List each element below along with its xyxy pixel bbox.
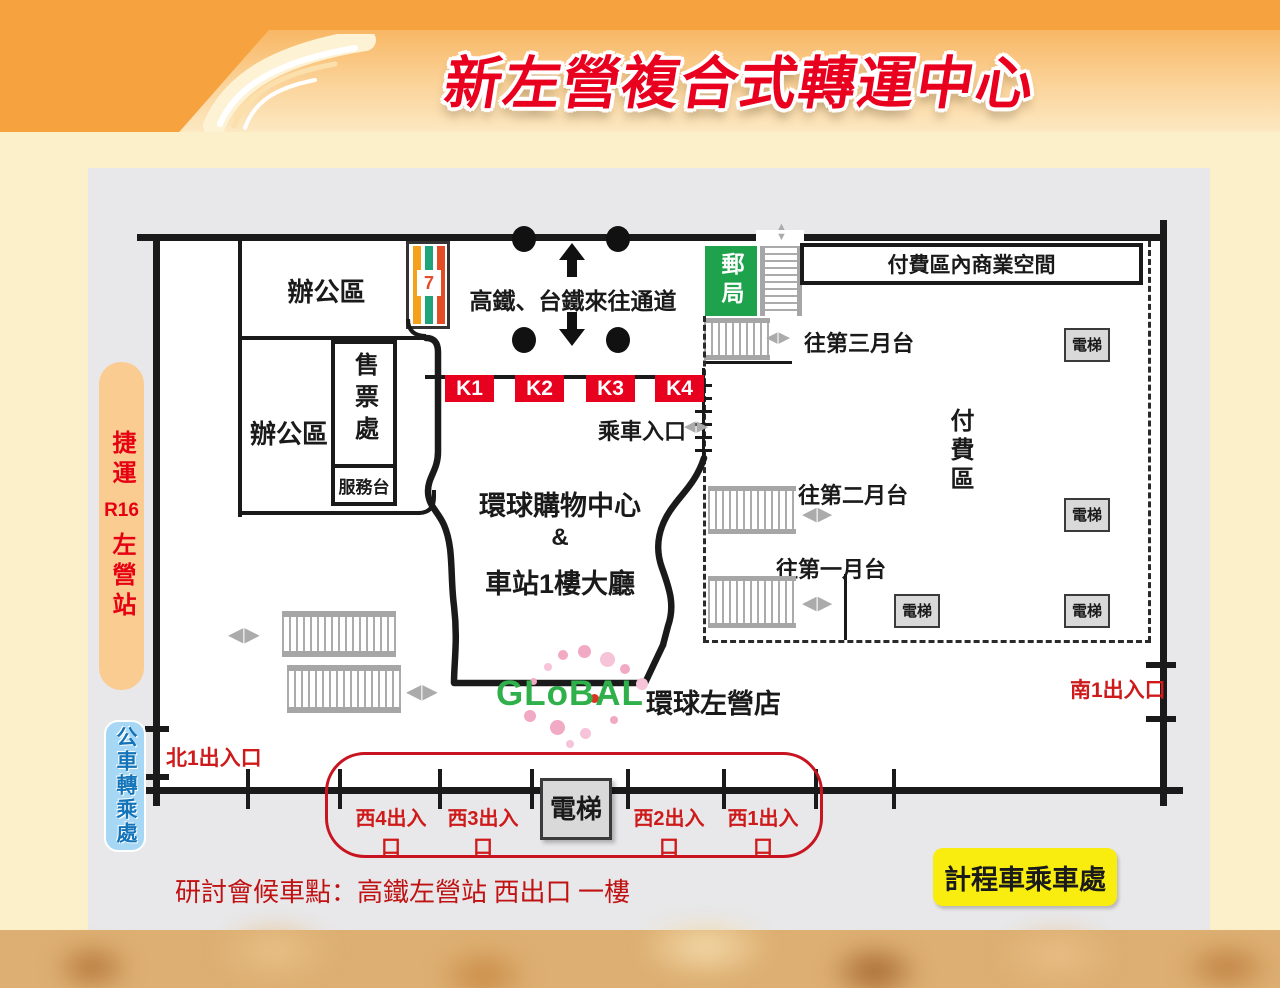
left-right-arrows-icon: ◀▶ [228, 622, 261, 647]
kiosk-k1: K1 [445, 375, 494, 402]
west-elevator-box: 電梯 [540, 778, 612, 840]
fare-gate-tick [695, 410, 712, 413]
kiosk-k3: K3 [586, 375, 635, 402]
wall-tick [1146, 716, 1176, 722]
stairs [282, 611, 396, 657]
mall-amp-label: & [465, 524, 655, 552]
north-exit-label: 北1出入口 [166, 742, 262, 772]
wall-tick [145, 774, 169, 780]
wall-tick [145, 726, 169, 732]
mrt-code-label: R16 [104, 500, 139, 522]
kiosk-k4: K4 [655, 375, 704, 402]
page: 新左營複合式轉運中心 辦公區 辦公區 7 售票處 服務台 高鐵、台鐵來往通道 ▲… [0, 0, 1280, 988]
bus-transfer-label: 公車轉乘處 [110, 726, 140, 846]
south-exit-label: 南1出入口 [1070, 674, 1166, 704]
west2-exit-label: 西2出入口 [626, 802, 712, 860]
bus-transfer-bar: 公車轉乘處 [104, 720, 146, 852]
taxi-stand-box: 計程車乘車處 [933, 848, 1117, 906]
stairs [287, 665, 401, 713]
mrt-line1-label: 捷運 [104, 430, 139, 490]
fare-gate-tick [695, 449, 712, 452]
west1-exit-label: 西1出入口 [720, 802, 806, 860]
wall-tick [892, 769, 896, 809]
waiting-point-note: 研討會候車點：高鐵左營站 西出口 一樓 [175, 872, 630, 909]
boarding-entrance-label: 乘車入口 [598, 414, 686, 446]
kiosk-k2: K2 [515, 375, 564, 402]
west3-exit-label: 西3出入口 [440, 802, 526, 860]
global-logo: GLoBAL [496, 674, 644, 714]
mrt-station-bar: 捷運 R16 左營站 [99, 362, 144, 690]
global-store-label: 環球左營店 [646, 682, 781, 721]
left-right-arrows-icon: ◀▶ [406, 679, 439, 704]
fare-gate-tick [695, 436, 712, 439]
mall-name-label: 環球購物中心 [465, 484, 655, 523]
mall-lobby-label: 車站1樓大廳 [465, 562, 655, 601]
mrt-line2-label: 左營站 [104, 532, 139, 622]
west4-exit-label: 西4出入口 [348, 802, 434, 860]
left-right-arrows-icon: ◀▶ [684, 417, 709, 435]
taxi-stand-label: 計程車乘車處 [944, 858, 1106, 897]
wall-tick [1146, 662, 1176, 668]
wall-tick [246, 769, 250, 809]
